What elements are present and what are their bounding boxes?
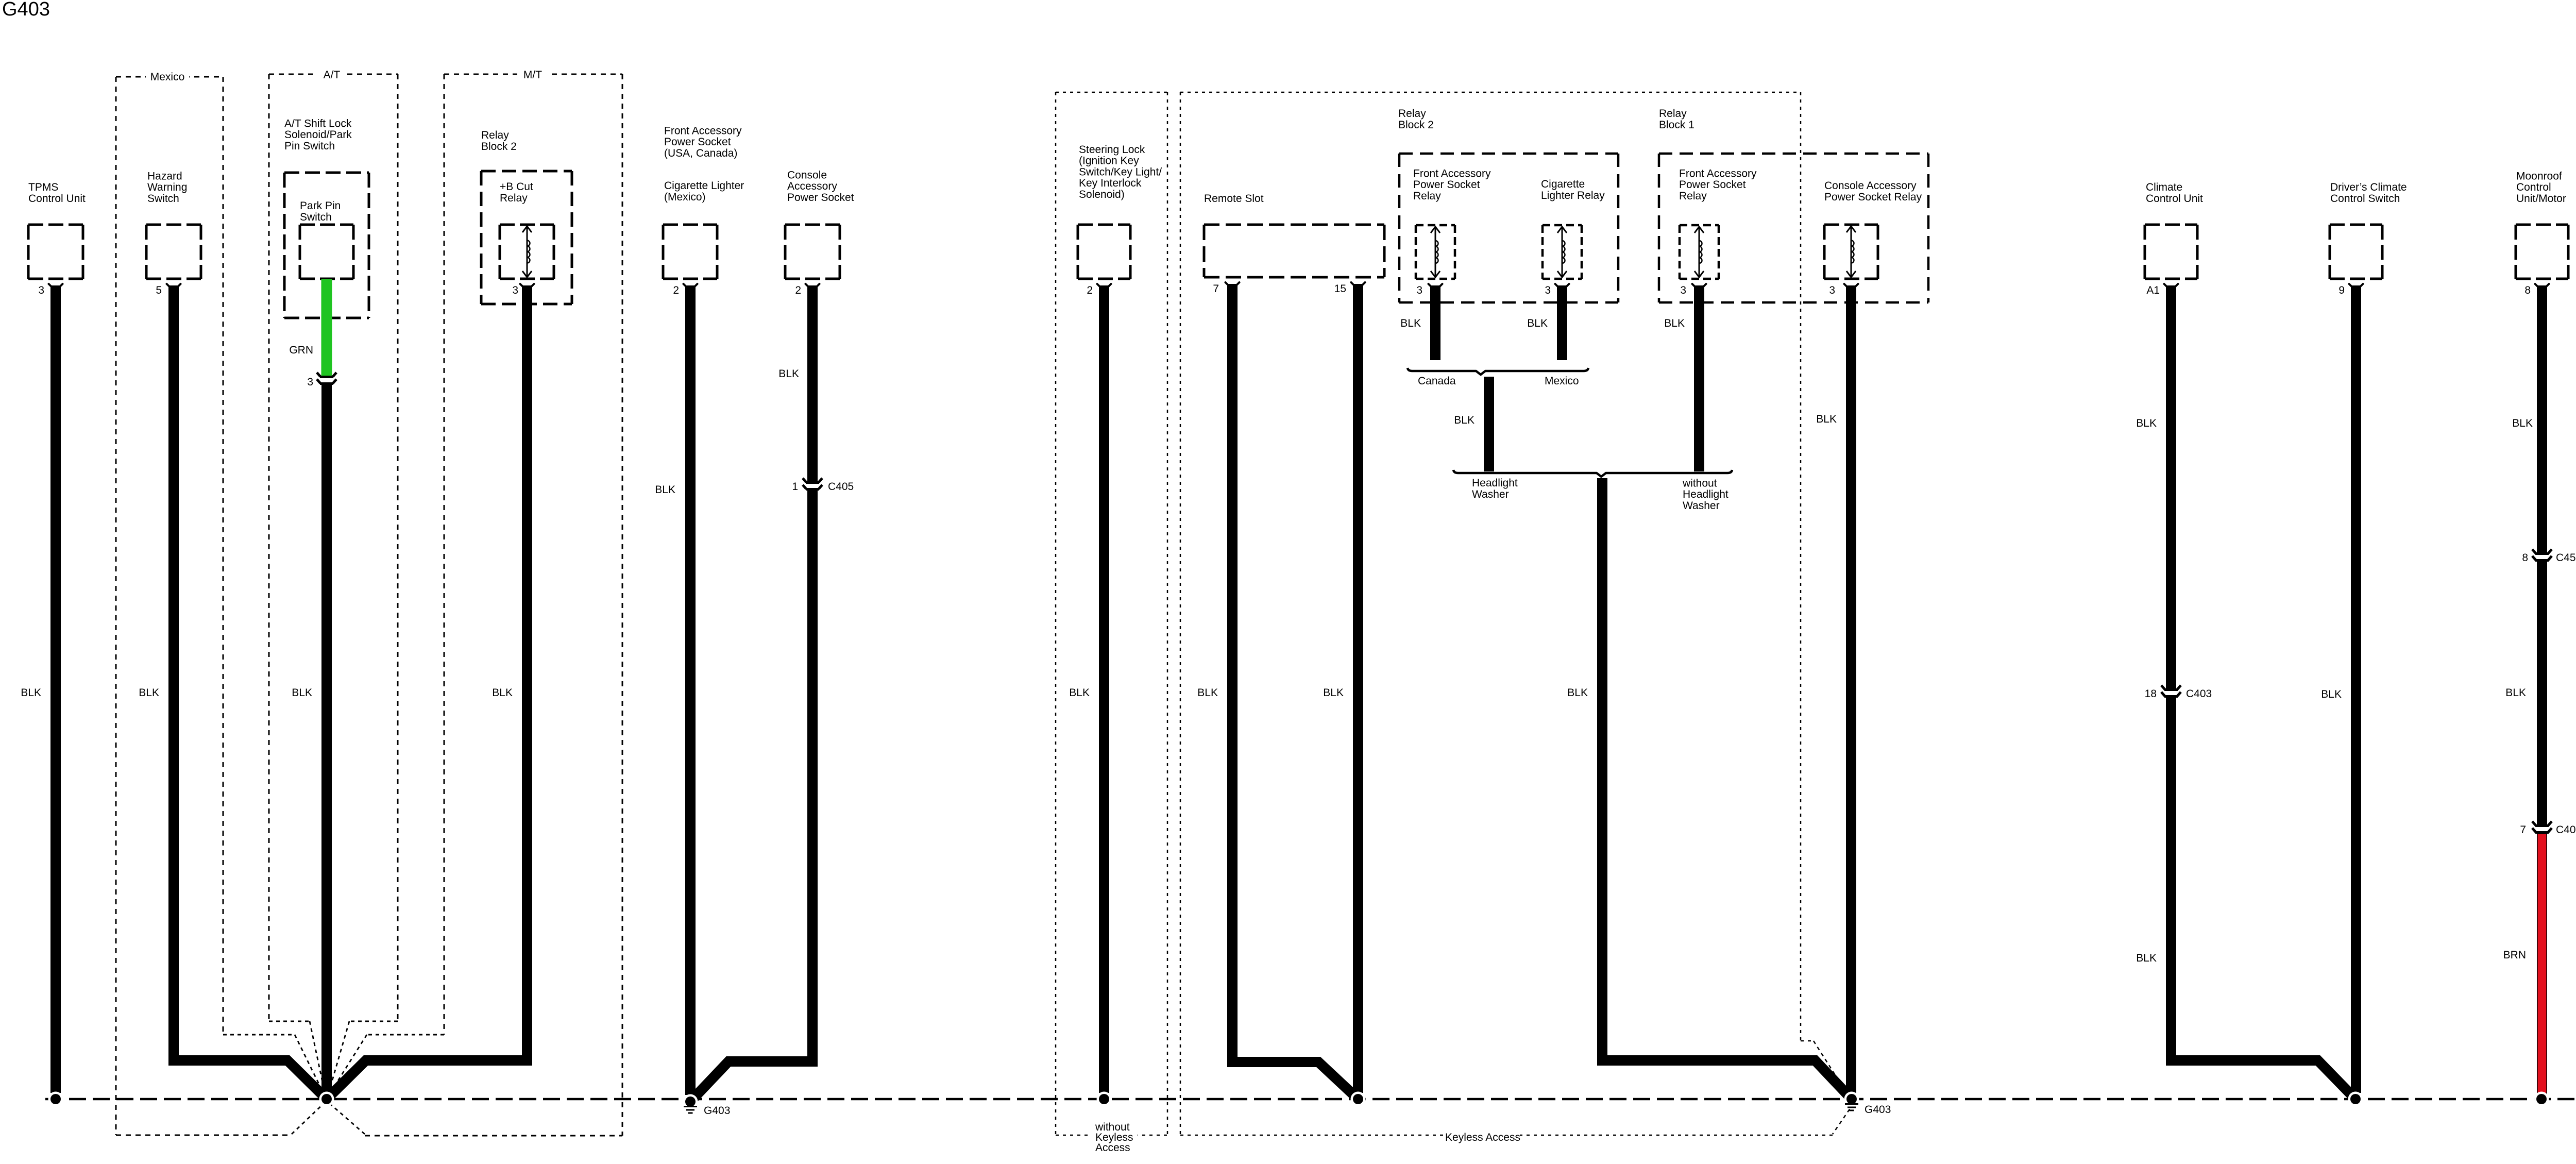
svg-text:Block 1: Block 1 xyxy=(1659,119,1694,131)
svg-text:GRN: GRN xyxy=(289,344,313,356)
svg-text:BLK: BLK xyxy=(1567,687,1588,699)
svg-text:BLK: BLK xyxy=(139,687,159,699)
svg-text:2: 2 xyxy=(1087,284,1093,296)
svg-text:+B Cut: +B Cut xyxy=(500,181,533,193)
svg-text:BLK: BLK xyxy=(2136,417,2157,429)
svg-text:Relay: Relay xyxy=(481,129,509,141)
svg-text:3: 3 xyxy=(1545,284,1551,296)
svg-text:Power Socket: Power Socket xyxy=(1679,179,1746,191)
svg-text:BRN: BRN xyxy=(2503,949,2526,961)
svg-text:C403: C403 xyxy=(2186,688,2212,700)
svg-text:Control Switch: Control Switch xyxy=(2330,193,2400,205)
svg-text:C402: C402 xyxy=(2556,824,2576,836)
svg-text:BLK: BLK xyxy=(292,687,312,699)
svg-text:Remote Slot: Remote Slot xyxy=(1204,193,1264,205)
svg-text:Washer: Washer xyxy=(1683,500,1720,512)
svg-text:1: 1 xyxy=(792,481,798,493)
svg-text:Power Socket: Power Socket xyxy=(1413,179,1480,191)
svg-text:TPMS: TPMS xyxy=(28,181,58,193)
svg-text:BLK: BLK xyxy=(492,687,513,699)
svg-text:3: 3 xyxy=(1680,284,1686,296)
svg-text:Solenoid/Park: Solenoid/Park xyxy=(284,129,352,141)
svg-text:Power Socket: Power Socket xyxy=(664,136,731,148)
svg-text:G403: G403 xyxy=(1865,1104,1891,1116)
svg-text:BLK: BLK xyxy=(2512,417,2533,429)
svg-text:3: 3 xyxy=(38,284,44,296)
svg-text:3: 3 xyxy=(1829,284,1835,296)
svg-text:BLK: BLK xyxy=(1197,687,1218,699)
svg-text:Control Unit: Control Unit xyxy=(28,193,86,205)
svg-text:Unit/Motor: Unit/Motor xyxy=(2516,193,2566,205)
svg-text:Solenoid): Solenoid) xyxy=(1079,189,1125,200)
svg-text:BLK: BLK xyxy=(1664,317,1685,329)
svg-text:Power Socket Relay: Power Socket Relay xyxy=(1824,191,1922,203)
svg-text:Canada: Canada xyxy=(1418,375,1456,387)
svg-text:Relay: Relay xyxy=(1679,190,1707,202)
svg-text:7: 7 xyxy=(2520,824,2526,836)
svg-text:A/T: A/T xyxy=(324,69,341,81)
svg-text:Access: Access xyxy=(1095,1142,1130,1154)
svg-text:Block 2: Block 2 xyxy=(1398,119,1434,131)
svg-text:Mexico: Mexico xyxy=(1545,375,1579,387)
svg-text:Front Accessory: Front Accessory xyxy=(1679,167,1757,179)
svg-text:without: without xyxy=(1682,477,1717,489)
svg-text:BLK: BLK xyxy=(2136,952,2157,964)
svg-text:M/T: M/T xyxy=(523,69,542,81)
svg-text:BLK: BLK xyxy=(1454,414,1475,426)
svg-text:C405: C405 xyxy=(828,481,854,493)
svg-text:8: 8 xyxy=(2522,552,2528,564)
svg-text:BLK: BLK xyxy=(21,687,41,699)
svg-text:BLK: BLK xyxy=(1323,687,1344,699)
svg-text:Control: Control xyxy=(2516,181,2551,193)
svg-text:3: 3 xyxy=(307,376,313,388)
svg-text:Park Pin: Park Pin xyxy=(300,200,341,212)
svg-text:9: 9 xyxy=(2338,284,2345,296)
svg-text:BLK: BLK xyxy=(1527,317,1548,329)
svg-text:Power Socket: Power Socket xyxy=(787,192,854,204)
svg-text:7: 7 xyxy=(1213,283,1219,295)
svg-text:BLK: BLK xyxy=(2505,687,2526,699)
svg-text:Cigarette: Cigarette xyxy=(1541,178,1585,190)
svg-text:(USA, Canada): (USA, Canada) xyxy=(664,147,737,159)
svg-text:Front Accessory: Front Accessory xyxy=(664,125,742,137)
svg-text:Warning: Warning xyxy=(147,181,187,193)
svg-text:Mexico: Mexico xyxy=(150,71,185,83)
svg-text:BLK: BLK xyxy=(1400,317,1421,329)
svg-text:Console Accessory: Console Accessory xyxy=(1824,180,1917,192)
svg-text:Hazard: Hazard xyxy=(147,170,182,182)
svg-text:C451: C451 xyxy=(2556,552,2576,564)
svg-text:Headlight: Headlight xyxy=(1472,477,1518,489)
svg-text:Steering Lock: Steering Lock xyxy=(1079,144,1145,156)
svg-text:8: 8 xyxy=(2524,284,2531,296)
svg-text:18: 18 xyxy=(2145,688,2157,700)
svg-text:Switch: Switch xyxy=(147,193,179,205)
svg-text:Keyless Access: Keyless Access xyxy=(1445,1132,1520,1143)
svg-text:5: 5 xyxy=(156,284,162,296)
svg-text:A1: A1 xyxy=(2146,284,2160,296)
svg-text:Lighter Relay: Lighter Relay xyxy=(1541,190,1605,201)
svg-text:BLK: BLK xyxy=(2321,688,2342,700)
svg-text:Accessory: Accessory xyxy=(787,180,837,192)
svg-text:A/T Shift Lock: A/T Shift Lock xyxy=(284,117,352,129)
svg-text:BLK: BLK xyxy=(655,484,675,496)
svg-text:BLK: BLK xyxy=(1069,687,1090,699)
svg-text:BLK: BLK xyxy=(778,368,799,380)
svg-text:Key Interlock: Key Interlock xyxy=(1079,177,1142,189)
svg-text:BLK: BLK xyxy=(1816,413,1837,425)
svg-text:Headlight: Headlight xyxy=(1683,488,1728,500)
svg-text:Switch: Switch xyxy=(300,211,332,223)
svg-text:Relay: Relay xyxy=(1398,108,1426,120)
svg-text:Driver’s Climate: Driver’s Climate xyxy=(2330,181,2407,193)
svg-text:Moonroof: Moonroof xyxy=(2516,170,2562,182)
svg-text:Climate: Climate xyxy=(2146,181,2182,193)
svg-text:Relay: Relay xyxy=(500,192,528,204)
svg-text:(Mexico): (Mexico) xyxy=(664,191,706,203)
svg-text:G403: G403 xyxy=(2,0,50,20)
svg-text:Block 2: Block 2 xyxy=(481,141,517,153)
svg-text:G403: G403 xyxy=(704,1105,730,1117)
svg-text:2: 2 xyxy=(795,284,801,296)
svg-text:Front Accessory: Front Accessory xyxy=(1413,167,1491,179)
svg-text:Switch/Key Light/: Switch/Key Light/ xyxy=(1079,166,1162,178)
svg-text:3: 3 xyxy=(1416,284,1422,296)
svg-text:Pin Switch: Pin Switch xyxy=(284,140,335,152)
svg-text:Control Unit: Control Unit xyxy=(2146,193,2203,205)
svg-text:Console: Console xyxy=(787,169,827,181)
svg-text:Washer: Washer xyxy=(1472,488,1509,500)
svg-text:(Ignition Key: (Ignition Key xyxy=(1079,155,1139,167)
svg-text:3: 3 xyxy=(512,284,518,296)
svg-text:Relay: Relay xyxy=(1659,108,1687,120)
svg-text:2: 2 xyxy=(673,284,679,296)
svg-text:15: 15 xyxy=(1334,283,1346,295)
svg-text:Relay: Relay xyxy=(1413,190,1441,202)
svg-text:Cigarette Lighter: Cigarette Lighter xyxy=(664,180,744,192)
